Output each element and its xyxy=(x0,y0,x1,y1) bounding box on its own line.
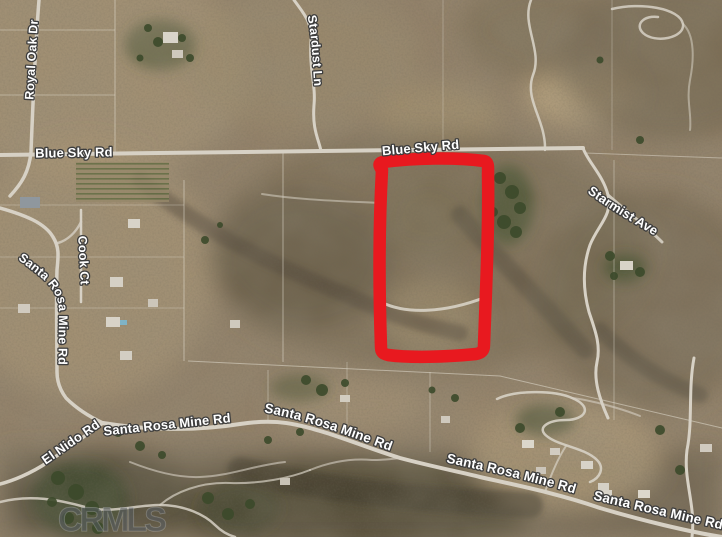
road-label-cook-ct: Cook Ct xyxy=(75,235,92,285)
orchard-field xyxy=(76,162,169,202)
swimming-pool xyxy=(120,320,127,325)
satellite-map[interactable]: Royal Oak Dr Blue Sky Rd Blue Sky Rd Sta… xyxy=(0,0,722,537)
crmls-watermark: CRMLS xyxy=(58,501,166,537)
satellite-map-canvas: Royal Oak Dr Blue Sky Rd Blue Sky Rd Sta… xyxy=(0,0,722,537)
road-label-cook-ct-text: Cook Ct xyxy=(75,235,92,285)
road-label-blue-sky-rd-west: Blue Sky Rd xyxy=(35,144,113,160)
